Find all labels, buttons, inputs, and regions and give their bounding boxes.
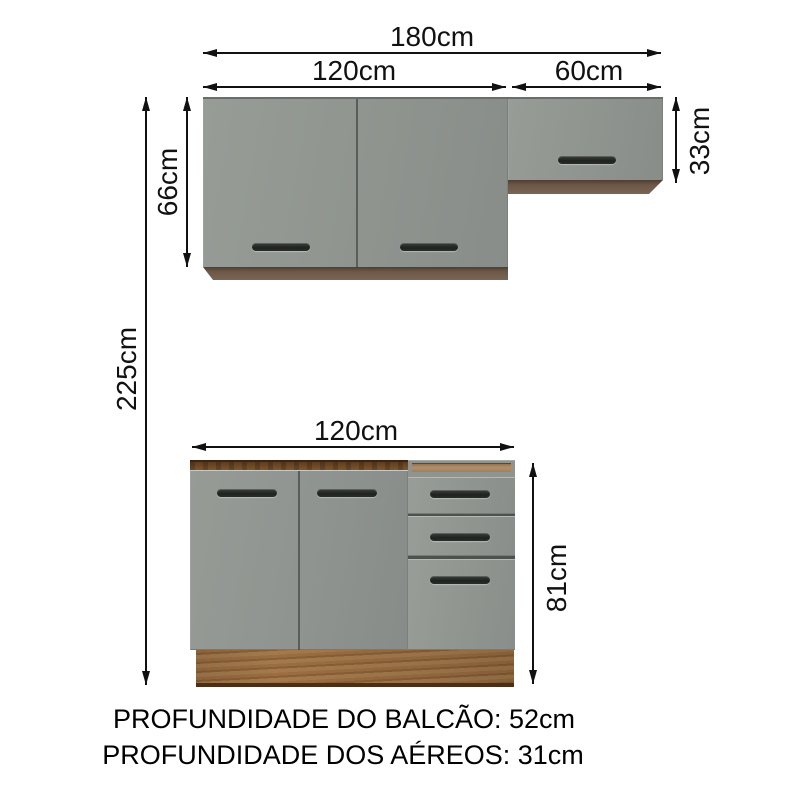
- base-cabinet-doors: [190, 470, 408, 650]
- wall-cabinet-left-door-divider: [356, 99, 358, 267]
- dim-label-wall-right-height: 33cm: [686, 107, 714, 175]
- wall-cabinet-right: [508, 97, 663, 180]
- wall-cabinet-left-bottom-trim: [203, 267, 508, 280]
- diagram-canvas: 180cm 120cm 60cm 66cm 33cm 225cm 120cm 8…: [0, 0, 800, 800]
- wall-cabinet-left: [203, 97, 508, 267]
- dim-label-wall-left-height: 66cm: [154, 148, 182, 216]
- wall-cabinet-left-door2-handle: [400, 243, 458, 251]
- base-cabinet-door1-handle: [217, 489, 277, 497]
- note-wall-units-depth: PROFUNDIDADE DOS AÉREOS: 31cm: [102, 742, 584, 769]
- drawer-2-handle: [430, 533, 490, 541]
- dim-label-wall-right-width: 60cm: [555, 57, 623, 85]
- dim-label-base-width: 120cm: [314, 417, 398, 445]
- drawer-column-open-top: [408, 460, 515, 477]
- dim-label-base-height: 81cm: [543, 544, 571, 612]
- base-cabinet-door2-handle: [317, 489, 377, 497]
- dim-label-total-height: 225cm: [113, 327, 141, 411]
- dim-label-total-width: 180cm: [390, 23, 474, 51]
- drawer-3: [408, 559, 515, 650]
- base-cabinet-open-top: [190, 460, 412, 470]
- wall-cabinet-right-bottom-trim: [508, 180, 663, 194]
- drawer-column-open-top-wood: [412, 463, 511, 472]
- wall-cabinet-left-door1-handle: [252, 243, 310, 251]
- base-cabinet-drawer-column: [408, 460, 515, 650]
- note-counter-depth: PROFUNDIDADE DO BALCÃO: 52cm: [113, 706, 575, 733]
- drawer-3-handle: [430, 576, 490, 584]
- drawer-1-handle: [430, 490, 490, 498]
- base-cabinet-door-divider: [298, 471, 300, 650]
- wall-cabinet-right-door-handle: [558, 156, 616, 164]
- base-cabinet-plinth: [196, 650, 514, 687]
- dim-label-wall-left-width: 120cm: [312, 57, 396, 85]
